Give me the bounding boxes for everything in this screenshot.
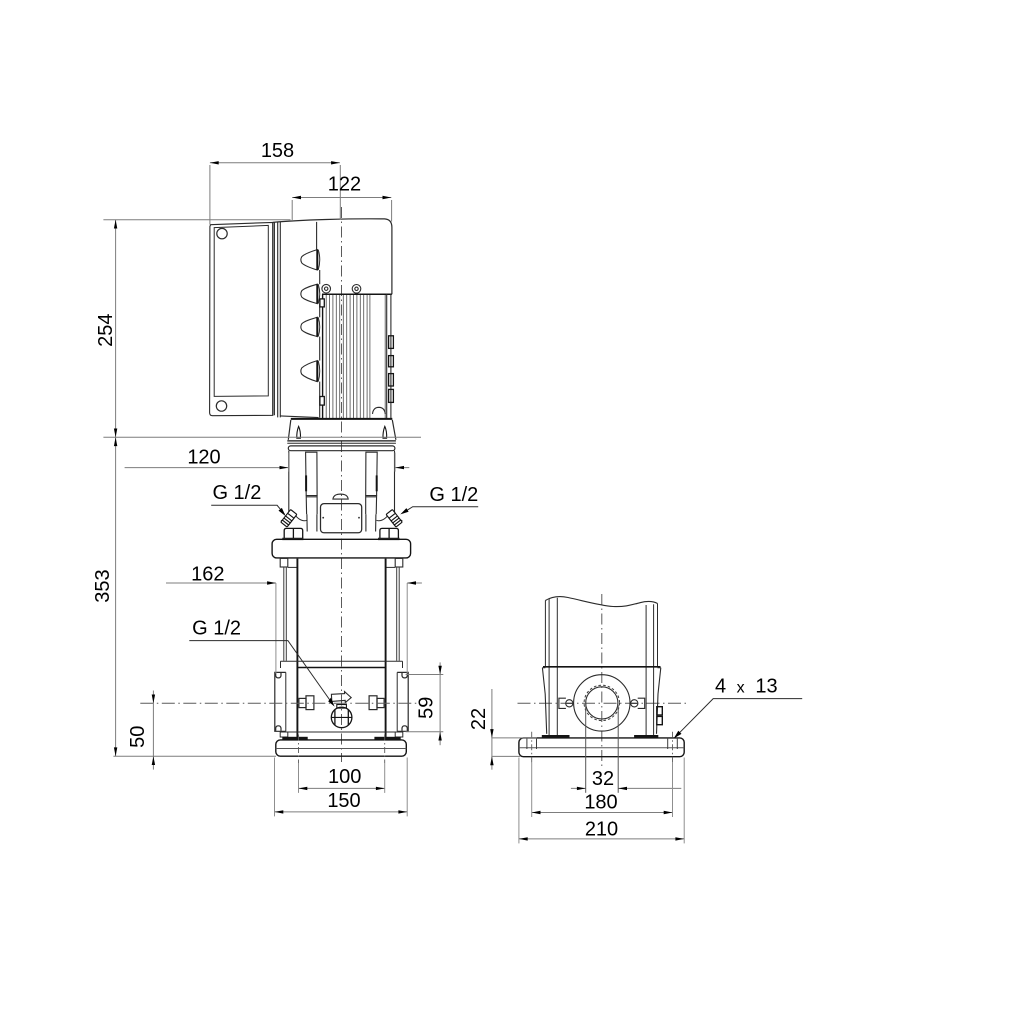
svg-text:50: 50 <box>127 726 149 748</box>
svg-text:G 1/2: G 1/2 <box>192 617 241 639</box>
svg-text:4: 4 <box>715 675 726 697</box>
svg-text:254: 254 <box>95 314 117 347</box>
svg-text:158: 158 <box>261 140 294 162</box>
svg-text:22: 22 <box>468 708 490 730</box>
svg-text:32: 32 <box>592 768 614 790</box>
svg-text:G 1/2: G 1/2 <box>212 482 261 504</box>
svg-text:122: 122 <box>328 174 361 196</box>
svg-text:x: x <box>737 679 745 696</box>
svg-text:210: 210 <box>585 818 618 840</box>
svg-text:162: 162 <box>191 563 224 585</box>
svg-text:353: 353 <box>92 569 114 602</box>
svg-text:59: 59 <box>415 697 437 719</box>
svg-text:180: 180 <box>584 792 617 814</box>
svg-text:100: 100 <box>328 766 361 788</box>
svg-text:120: 120 <box>187 446 220 468</box>
svg-text:150: 150 <box>327 790 360 812</box>
svg-text:G 1/2: G 1/2 <box>429 484 478 506</box>
svg-text:13: 13 <box>755 675 777 697</box>
